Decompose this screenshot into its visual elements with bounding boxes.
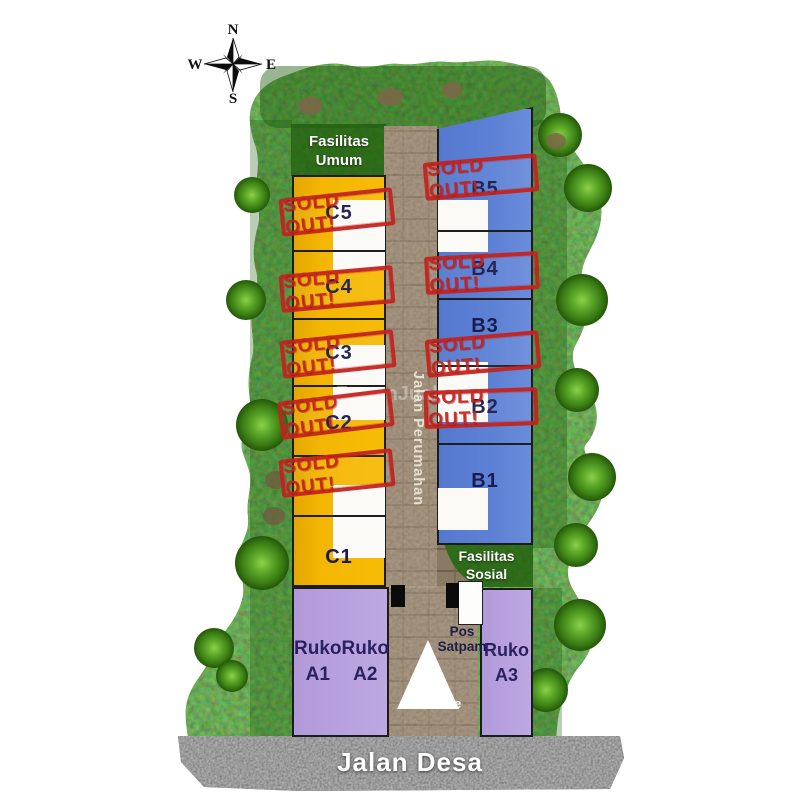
- fasilitas-umum-label: Fasilitas Umum: [292, 133, 386, 171]
- ruko-a3-block: Ruko A3: [480, 588, 533, 737]
- sold-out-stamp-c5: SOLD OUT!: [278, 187, 395, 237]
- gate-pillar-right: [446, 583, 459, 608]
- ruko-a3-line2: A3: [484, 663, 529, 687]
- compass-label-east: E: [266, 57, 276, 73]
- ruko-a1-line1: Ruko: [294, 636, 342, 662]
- guard-post-box: [458, 581, 483, 625]
- jalan-desa-label: Jalan Desa: [310, 747, 510, 778]
- lot-label-c1: C1: [292, 546, 386, 569]
- sold-out-stamp-b3: SOLD OUT!: [425, 330, 542, 378]
- lot-divider: [292, 318, 386, 320]
- sold-out-stamp-c3: SOLD OUT!: [279, 329, 396, 379]
- sold-out-stamp-b2: SOLD OUT!: [423, 387, 538, 429]
- fasilitas-umum-line2: Umum: [292, 152, 386, 171]
- sold-out-stamp-b5: SOLD OUT!: [423, 153, 540, 201]
- ruko-a1-label: Ruko A1: [294, 636, 342, 687]
- fasilitas-umum-line1: Fasilitas: [292, 133, 386, 152]
- lot-divider: [437, 298, 533, 300]
- compass-label-north: N: [228, 22, 239, 38]
- lot-divider: [437, 230, 533, 232]
- sold-out-stamp-c4: SOLD OUT!: [279, 265, 396, 313]
- sold-out-stamp-b4: SOLD OUT!: [424, 251, 540, 295]
- fasilitas-sosial-line2: Sosial: [440, 566, 533, 584]
- ruko-a2-line2: A2: [342, 662, 390, 688]
- compass-label-south: S: [229, 91, 237, 107]
- site-plan-canvas: N E S W C5 C4 C3 C2 C1 B5 B4 B3 B2 B1 Fa…: [0, 0, 800, 800]
- unit-footprint: [438, 200, 488, 252]
- compass-label-west: W: [188, 57, 203, 73]
- unit-footprint: [438, 488, 488, 530]
- sold-out-stamp-c1-row: SOLD OUT!: [278, 448, 395, 498]
- fasilitas-sosial-label: Fasilitas Sosial: [440, 548, 533, 583]
- ruko-a1-a2-block: Ruko A1 Ruko A2: [292, 587, 389, 737]
- fasilitas-sosial-line1: Fasilitas: [440, 548, 533, 566]
- lot-divider: [292, 515, 386, 517]
- pos-satpam-line2: Satpam: [431, 640, 493, 655]
- ruko-a2-line1: Ruko: [342, 636, 390, 662]
- gate-pillar-left: [391, 585, 405, 607]
- lot-label-b1: B1: [437, 470, 533, 493]
- lot-divider: [437, 443, 533, 445]
- ruko-a2-label: Ruko A2: [342, 636, 390, 687]
- ruko-a1-line2: A1: [294, 662, 342, 688]
- entrance-label: Entrance: [400, 697, 464, 711]
- road-label-jalan-perumahan: Jalan Perumahan: [402, 324, 426, 554]
- pos-satpam-line1: Pos: [431, 625, 493, 640]
- pos-satpam-label: Pos Satpam: [431, 625, 493, 655]
- lot-divider: [292, 250, 386, 252]
